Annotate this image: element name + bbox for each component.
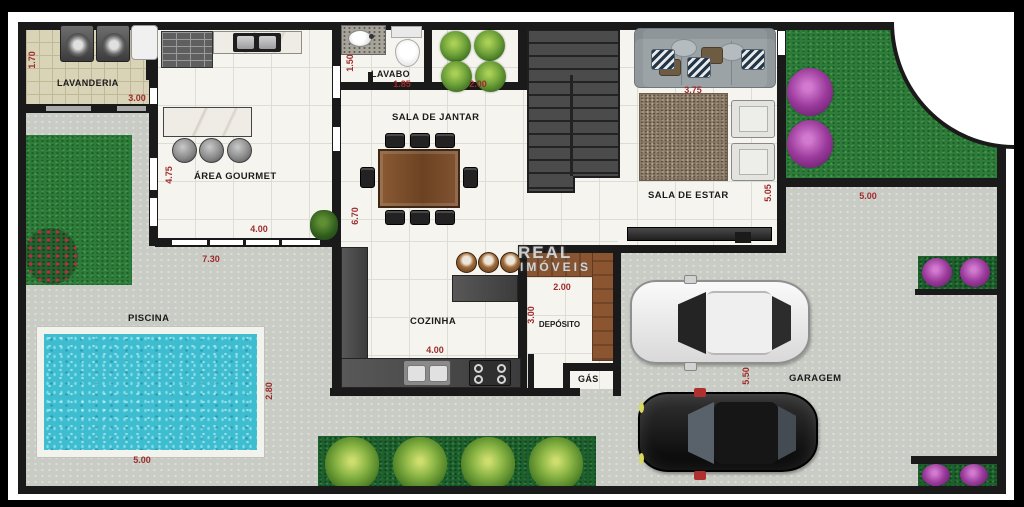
garden-bush-icon [440, 31, 471, 62]
dim-lavanderia-height: 1.70 [27, 45, 37, 75]
wall-right [997, 144, 1006, 494]
washing-machine-icon [60, 25, 94, 62]
suv-windshield [678, 292, 706, 354]
toilet-tank-icon [391, 26, 422, 38]
kitchen-sink-icon [403, 360, 451, 386]
room-label-piscina: PISCINA [128, 313, 169, 324]
white-suv [630, 280, 810, 364]
kitchen-stool-icon [456, 252, 477, 273]
chevron-pillow-icon [741, 49, 765, 70]
window-jantar [333, 66, 340, 98]
sedan-rear-window [778, 406, 796, 460]
wall-deposito-east [613, 245, 621, 396]
room-label-lavabo: LAVABO [371, 69, 410, 79]
purple-flower-icon [960, 258, 990, 287]
washer-drum-icon [102, 33, 126, 57]
sofa [634, 28, 776, 88]
dining-chair-icon [435, 210, 455, 225]
dim-estar-height: 5.05 [763, 178, 773, 208]
window-lavanderia [117, 106, 146, 111]
hedge-bush-icon [461, 437, 515, 491]
wall-bottom [18, 486, 1006, 494]
washer-drum-icon [66, 33, 90, 57]
lavabo-sink-icon [348, 30, 372, 47]
dim-winter-garden-width: 2.00 [463, 79, 493, 89]
stair-divider [570, 75, 573, 178]
kitchen-island [452, 275, 518, 302]
wall-bed-bottom [911, 456, 1006, 464]
dim-deposito-width: 2.00 [547, 282, 577, 292]
washing-machine-icon [96, 25, 130, 62]
window-estar [778, 31, 785, 55]
room-label-gas: GÁS [578, 374, 599, 384]
sedan-roof [714, 402, 778, 464]
bar-stool-icon [172, 138, 197, 163]
suv-roof [706, 291, 772, 355]
sedan-mirror-icon [694, 471, 706, 480]
burner-icon [474, 375, 483, 384]
red-flower-bush-icon [26, 228, 78, 284]
room-label-cozinha: COZINHA [410, 316, 456, 327]
wall-left [18, 22, 26, 494]
window-gourmet [150, 198, 157, 226]
double-sink-icon [233, 33, 281, 52]
door-leaf-estar [735, 232, 751, 243]
dining-chair-icon [360, 167, 375, 188]
wall-estar-east [777, 22, 786, 253]
dining-chair-icon [435, 133, 455, 148]
wall-kitchen-south [330, 388, 580, 396]
pool-water [44, 334, 257, 450]
staircase-lower [527, 176, 575, 193]
faucet-icon [369, 34, 374, 39]
sedan-mirror-icon [694, 388, 706, 397]
dim-garagem-height: 5.50 [741, 361, 751, 391]
stove-icon [469, 360, 511, 386]
sedan-windshield [688, 402, 714, 464]
dim-jantar-height: 6.70 [350, 201, 360, 231]
hedge-bush-icon [529, 437, 583, 491]
suv-rear-window [772, 296, 791, 350]
headlight-icon [639, 402, 644, 413]
purple-bush-icon [787, 68, 833, 116]
dining-chair-icon [410, 210, 430, 225]
purple-flower-icon [960, 464, 988, 486]
dim-piscina-width: 5.00 [127, 455, 157, 465]
staircase [527, 29, 620, 178]
burner-icon [497, 375, 506, 384]
wall-garden-south [777, 178, 1006, 187]
kitchen-stool-icon [478, 252, 499, 273]
armchair-icon [731, 100, 775, 138]
chevron-pillow-icon [651, 49, 675, 70]
armchair-icon [731, 143, 775, 181]
dim-piscina-height: 2.80 [264, 376, 274, 406]
dim-cozinha-width: 4.00 [420, 345, 450, 355]
burner-icon [474, 364, 483, 373]
room-label-sala-de-estar: SALA DE ESTAR [648, 190, 729, 201]
sliding-door-gourmet [172, 240, 320, 245]
dim-patio-width: 7.30 [196, 254, 226, 264]
room-label-deposito: DEPÓSITO [527, 320, 592, 329]
dim-side-grass-width: 5.00 [853, 191, 883, 201]
black-sedan [638, 392, 818, 472]
dim-gourmet-width: 4.00 [244, 224, 274, 234]
door-divider [279, 240, 282, 245]
stone-counter-icon [161, 31, 213, 68]
dining-chair-icon [463, 167, 478, 188]
burner-icon [497, 364, 506, 373]
room-label-sala-de-jantar: SALA DE JANTAR [392, 112, 479, 123]
window-lavanderia [46, 106, 91, 111]
deposito-floor [527, 277, 592, 388]
dim-sofa-width: 3.75 [678, 85, 708, 95]
dining-chair-icon [385, 133, 405, 148]
shag-rug [639, 93, 728, 181]
room-label-lavanderia: LAVANDERIA [57, 78, 119, 88]
headlight-icon [639, 453, 644, 464]
suv-mirror-icon [684, 275, 697, 284]
chevron-pillow-icon [687, 57, 711, 78]
sink-basin-icon [407, 365, 426, 382]
dining-chair-icon [385, 210, 405, 225]
floor-plan: LAVANDERIA ÁREA GOURMET LAVABO SALA DE J… [0, 0, 1024, 507]
window-jantar [333, 127, 340, 151]
sink-basin-icon [237, 36, 254, 49]
window-gourmet [150, 158, 157, 190]
wall-lavabo-east [424, 22, 432, 90]
room-label-garagem: GARAGEM [789, 373, 841, 384]
room-label-area-gourmet: ÁREA GOURMET [194, 171, 277, 182]
door-leaf-lavanderia [146, 58, 151, 80]
bar-stool-icon [227, 138, 252, 163]
sink-basin-icon [429, 365, 448, 382]
door-divider [207, 240, 210, 245]
dim-lavabo-height: 1.50 [345, 48, 355, 78]
laundry-tub-icon [131, 25, 158, 60]
wall-bed-top [915, 289, 1006, 295]
door-leaf-deposito [528, 354, 534, 390]
door-divider [243, 240, 246, 245]
wall-garden-east [518, 26, 527, 90]
purple-flower-icon [922, 258, 952, 287]
purple-flower-icon [922, 464, 950, 486]
dim-deposito-height: 3.00 [526, 300, 536, 330]
sink-basin-icon [259, 36, 276, 49]
armchair-seat [739, 149, 768, 175]
dim-gourmet-height: 4.75 [164, 160, 174, 190]
garden-bush-icon [474, 30, 505, 61]
watermark-text: IMÓVEIS [520, 260, 591, 274]
wall-gas-top [563, 363, 620, 371]
dining-chair-icon [410, 133, 430, 148]
suv-mirror-icon [684, 362, 697, 371]
bar-stool-icon [199, 138, 224, 163]
potted-plant-icon [310, 210, 338, 240]
armchair-seat [739, 106, 768, 132]
hedge-bush-icon [325, 437, 379, 491]
dining-table [378, 149, 460, 208]
purple-bush-icon [787, 120, 833, 168]
dim-lavanderia-width: 3.00 [122, 93, 152, 103]
hedge-bush-icon [393, 437, 447, 491]
gourmet-bar-counter [163, 107, 252, 137]
dim-lavabo-width: 1.85 [387, 79, 417, 89]
